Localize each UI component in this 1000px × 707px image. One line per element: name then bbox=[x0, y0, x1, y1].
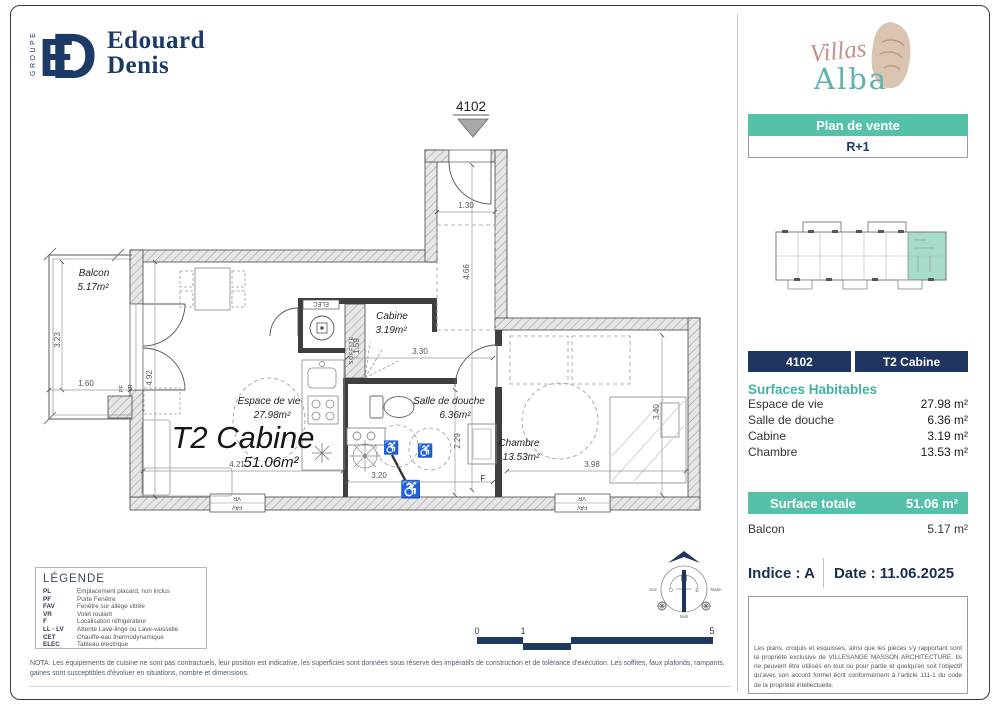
brand-name: Edouard Denis bbox=[107, 28, 205, 79]
svg-text:E: E bbox=[695, 588, 699, 594]
legend-item: CETChauffe-eau thermodynamique bbox=[43, 634, 199, 642]
level-box: R+1 bbox=[748, 136, 968, 158]
surface-row: Cabine3.19 m² bbox=[748, 429, 968, 445]
surface-totale-label: Surface totale bbox=[770, 496, 856, 511]
legend-item: FLocalisation réfrigérateur bbox=[43, 618, 199, 626]
svg-text:3.20: 3.20 bbox=[371, 471, 387, 480]
plan-de-vente-banner: Plan de vente bbox=[748, 114, 968, 136]
svg-text:4102: 4102 bbox=[456, 99, 486, 114]
wheelchair-icon: ♿ bbox=[383, 440, 399, 455]
svg-text:1.59: 1.59 bbox=[352, 338, 361, 354]
fridge-label: F bbox=[480, 473, 485, 483]
chambre-label: Chambre bbox=[498, 438, 540, 449]
svg-text:4.66: 4.66 bbox=[462, 264, 471, 280]
indice-date-separator bbox=[823, 558, 824, 588]
legend-item: PFPorte Fenêtre bbox=[43, 596, 199, 604]
legend-item: PLEmplacement placard, non inclus bbox=[43, 588, 199, 596]
date-label: Date : 11.06.2025 bbox=[834, 565, 954, 582]
unit-number-box: 4102 bbox=[748, 351, 851, 372]
compass-icon: N O E Soir Matin Midi bbox=[649, 551, 722, 619]
brand-name-line2: Denis bbox=[107, 53, 205, 79]
svg-text:13.53m²: 13.53m² bbox=[503, 452, 540, 463]
svg-text:Matin: Matin bbox=[710, 587, 722, 592]
legend-item: VRVolet roulant bbox=[43, 611, 199, 619]
bottom-rule bbox=[30, 686, 730, 687]
svg-text:6.36m²: 6.36m² bbox=[439, 410, 471, 421]
unit-marker: 4102 bbox=[453, 99, 489, 137]
indice-date-row: Indice : A Date : 11.06.2025 bbox=[748, 558, 968, 588]
hood-icon bbox=[312, 443, 332, 463]
svg-text:1.30: 1.30 bbox=[458, 201, 474, 210]
surface-totale-value: 51.06 m² bbox=[906, 496, 958, 511]
unit-type-box: T2 Cabine bbox=[855, 351, 968, 372]
svg-text:O: O bbox=[669, 588, 673, 594]
svg-text:ELEC: ELEC bbox=[313, 300, 329, 306]
svg-text:3.40: 3.40 bbox=[652, 404, 661, 420]
dimension-lines bbox=[49, 165, 686, 497]
edouard-denis-logo: GROUPE E D Edouard Denis bbox=[30, 16, 205, 90]
surfaces-title: Surfaces Habitables bbox=[748, 382, 968, 397]
svg-text:VR: VR bbox=[578, 495, 586, 501]
svg-text:5.17m²: 5.17m² bbox=[77, 282, 109, 293]
svg-text:3.30: 3.30 bbox=[412, 347, 428, 356]
surface-totale-banner: Surface totale 51.06 m² bbox=[748, 492, 968, 514]
svg-text:1: 1 bbox=[520, 626, 525, 636]
legend-item: ELECTableau électrique bbox=[43, 641, 199, 649]
unit-id-row: 4102 T2 Cabine bbox=[748, 351, 968, 372]
copyright-text: Les plans, croquis et esquisses, ainsi q… bbox=[754, 644, 962, 690]
building-overview bbox=[748, 210, 968, 302]
svg-text:Midi: Midi bbox=[680, 614, 688, 619]
surface-row: Chambre13.53 m² bbox=[748, 445, 968, 461]
plan-de-vente-page: GROUPE E D Edouard Denis bbox=[0, 0, 1000, 707]
svg-text:Soir: Soir bbox=[649, 587, 658, 592]
scale-bar: 0 1 5 bbox=[474, 626, 714, 650]
surface-row: Espace de vie27.98 m² bbox=[748, 397, 968, 413]
svg-text:1.60: 1.60 bbox=[78, 379, 94, 388]
info-panel: Villas Alba Plan de vente R+1 bbox=[748, 14, 968, 694]
surface-row: Salle de douche6.36 m² bbox=[748, 413, 968, 429]
svg-text:51.06m²: 51.06m² bbox=[243, 454, 299, 471]
brand-name-line1: Edouard bbox=[107, 28, 205, 54]
svg-text:PF: PF bbox=[119, 384, 125, 392]
svg-text:5: 5 bbox=[709, 626, 714, 636]
nota-text: NOTA: Les équipements de cuisine ne sont… bbox=[30, 659, 732, 680]
legend-box: LÉGENDE PLEmplacement placard, non inclu… bbox=[35, 567, 207, 649]
bathroom-fixtures bbox=[347, 396, 496, 472]
svg-text:FAV: FAV bbox=[577, 504, 587, 510]
svg-text:4.92: 4.92 bbox=[145, 370, 154, 386]
svg-text:D: D bbox=[51, 20, 97, 90]
svg-text:FAV: FAV bbox=[232, 504, 242, 510]
panel-divider bbox=[737, 14, 738, 692]
svg-text:VR: VR bbox=[128, 384, 134, 392]
balcon-row: Balcon5.17 m² bbox=[748, 522, 968, 538]
svg-text:VR: VR bbox=[233, 495, 241, 501]
svg-text:3.19m²: 3.19m² bbox=[375, 325, 407, 336]
villas-alba-logo: Villas Alba bbox=[748, 14, 968, 114]
svg-text:3.98: 3.98 bbox=[584, 460, 600, 469]
indice-label: Indice : A bbox=[748, 565, 815, 582]
groupe-label: GROUPE bbox=[30, 24, 37, 82]
copyright-box: Les plans, croquis et esquisses, ainsi q… bbox=[748, 596, 968, 694]
ed-monogram-icon: E D bbox=[39, 16, 101, 90]
svg-text:3.23: 3.23 bbox=[53, 332, 62, 348]
legend-item: FAVFenêtre sur allège vitrée bbox=[43, 603, 199, 611]
main-unit-label: T2 Cabine bbox=[171, 420, 314, 455]
alba-wordmark: Alba bbox=[814, 62, 888, 96]
espace-de-vie-label: Espace de vie bbox=[238, 396, 301, 407]
salle-de-douche-label: Salle de douche bbox=[413, 396, 485, 407]
entrance-triangle-icon bbox=[458, 119, 488, 137]
balcon-label: Balcon bbox=[79, 268, 110, 279]
svg-text:2.29: 2.29 bbox=[453, 433, 462, 449]
wheelchair-icon: ♿ bbox=[417, 443, 433, 458]
cabine-label: Cabine bbox=[376, 311, 408, 322]
legend-item: LL - LVAttente Lave-linge ou Lave-vaisse… bbox=[43, 626, 199, 634]
svg-text:0: 0 bbox=[474, 626, 479, 636]
legend-title: LÉGENDE bbox=[43, 573, 199, 585]
